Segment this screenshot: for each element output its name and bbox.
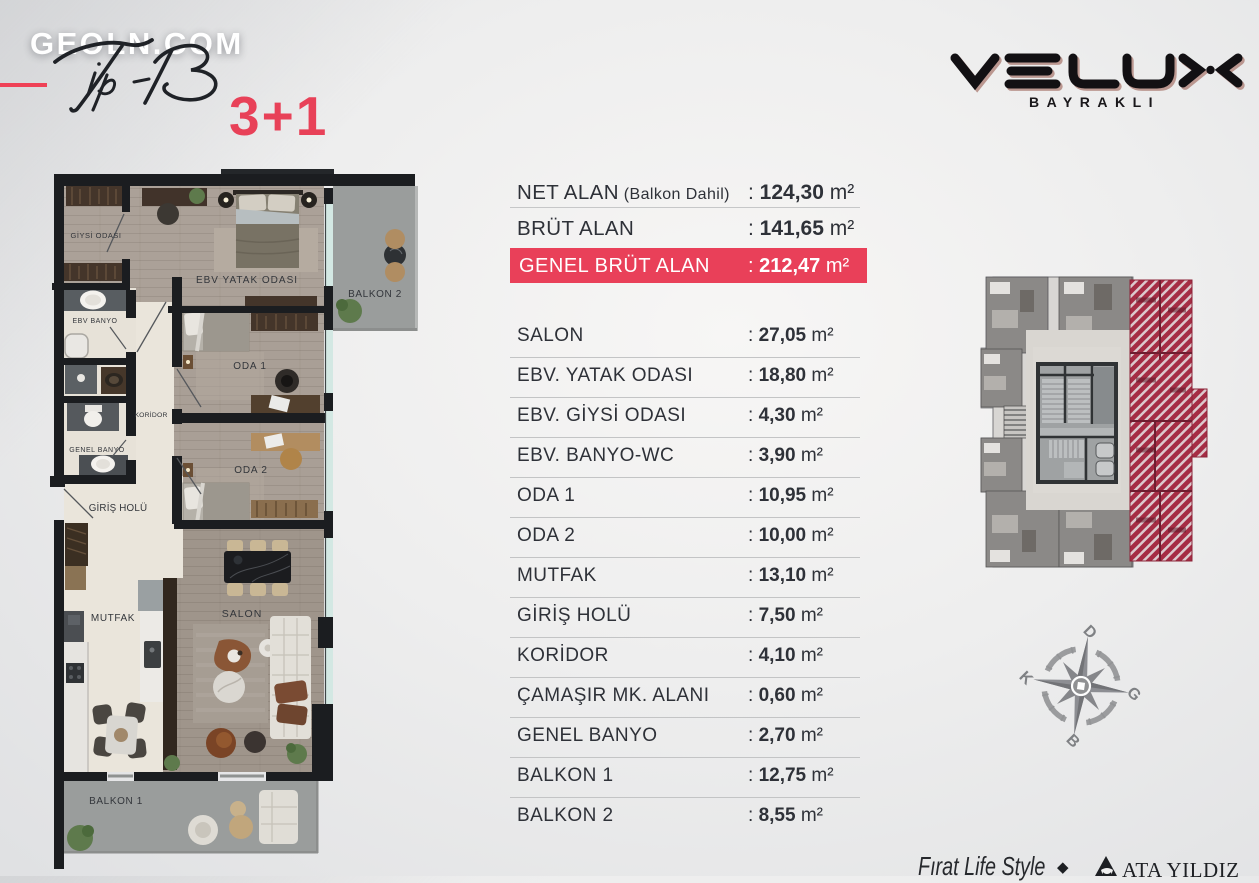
svg-text:GİRİŞ HOLÜ: GİRİŞ HOLÜ — [89, 503, 148, 514]
svg-text:SALON: SALON — [222, 608, 263, 620]
svg-text:B: B — [1063, 731, 1083, 751]
svg-text:KORİDOR: KORİDOR — [134, 410, 167, 419]
svg-text:ODA 1: ODA 1 — [233, 361, 266, 372]
svg-text:ODA 2: ODA 2 — [234, 465, 267, 476]
svg-text:GENEL BANYO: GENEL BANYO — [69, 447, 124, 454]
svg-text:BALKON 1: BALKON 1 — [89, 796, 143, 807]
svg-text:G: G — [1123, 684, 1144, 705]
svg-text:EBV YATAK ODASI: EBV YATAK ODASI — [196, 275, 298, 286]
svg-text:MUTFAK: MUTFAK — [91, 613, 135, 624]
svg-text:D: D — [1080, 622, 1100, 642]
svg-text:BALKON 2: BALKON 2 — [348, 289, 402, 300]
svg-text:K: K — [1016, 668, 1037, 689]
svg-text:EBV BANYO: EBV BANYO — [73, 318, 118, 325]
svg-text:GİYSİ ODASI: GİYSİ ODASI — [71, 231, 122, 240]
